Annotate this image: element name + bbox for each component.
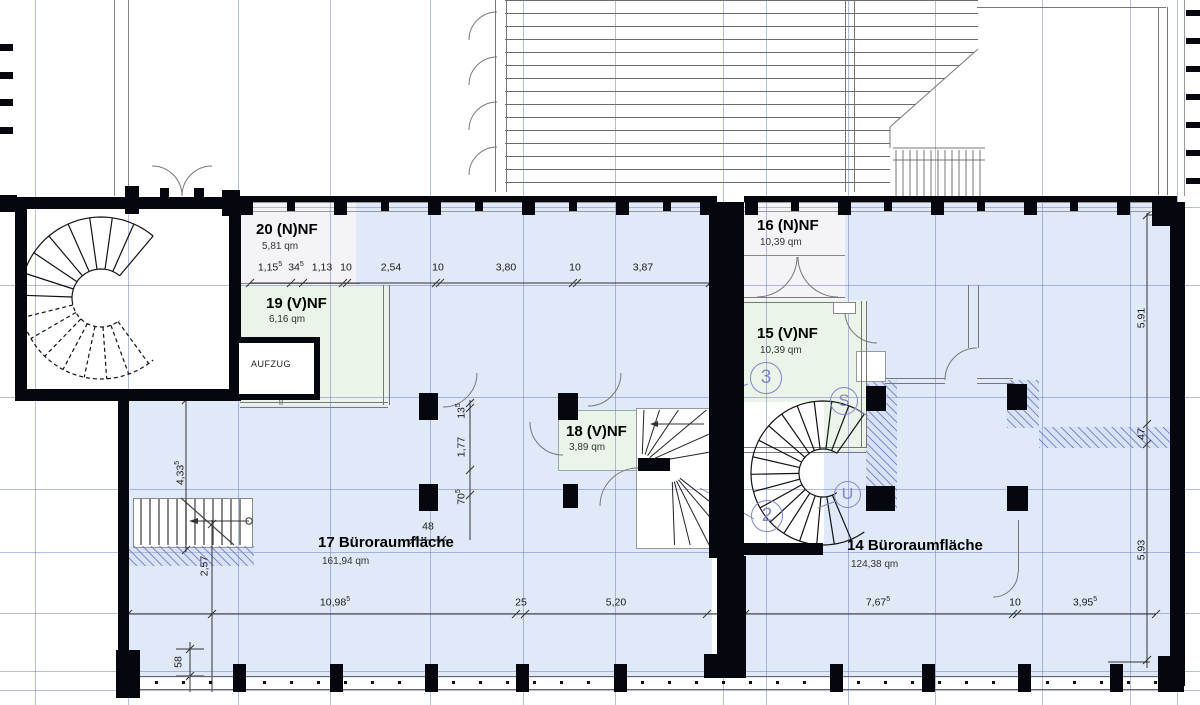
facade-pillar	[425, 664, 438, 692]
room-15-area: 10,39 qm	[760, 345, 802, 356]
window-band-top-right	[744, 202, 1168, 212]
column	[419, 484, 438, 511]
column	[866, 386, 886, 411]
grid-line-vertical	[935, 0, 936, 705]
wall-corner-bottom-left	[116, 650, 140, 698]
dim-right-3: 5,93	[1135, 540, 1148, 560]
dim-top-4: 10	[340, 261, 352, 274]
edge-stair-mark	[1186, 38, 1200, 44]
dim-bottom-2: 25	[515, 596, 527, 609]
facade-pillar	[977, 198, 985, 211]
room-17-name: 17 Büroraumfläche	[318, 534, 454, 551]
hatch-under-straight-stair	[128, 546, 254, 566]
fire-ladder-line	[1184, 0, 1185, 196]
facade-pillar	[334, 198, 347, 215]
column	[558, 393, 578, 420]
dim-left-3: 58	[172, 656, 185, 668]
facade-pillar	[1110, 664, 1123, 692]
wall-left-unit17	[118, 396, 129, 656]
dim-top-5: 2,54	[381, 261, 401, 274]
facade-pillar	[381, 198, 389, 211]
marker-3-text: 3	[761, 367, 772, 389]
room-16-area: 10,39 qm	[760, 237, 802, 248]
dim-left-2: 2,57	[198, 556, 211, 576]
room-19-name: 19 (V)NF	[266, 295, 327, 312]
dim-bottom-1: 10,985	[320, 596, 350, 609]
edge-wall-corner	[0, 195, 17, 212]
marker-U: U	[834, 481, 861, 508]
room-14-area: 124,38 qm	[851, 559, 898, 570]
facade-pillar	[663, 198, 671, 211]
edge-stair-mark	[0, 99, 13, 106]
wall-14-stub-door	[1018, 520, 1019, 572]
dim-mid-4: 48	[422, 520, 434, 533]
winder-stair-block	[636, 408, 716, 549]
dim-top-1: 1,155	[258, 261, 282, 274]
wall-corner-top-right	[1152, 196, 1176, 226]
neighbour-court-outline	[977, 7, 1166, 196]
neighbour-building-roof	[505, 0, 978, 192]
dim-top-8: 10	[569, 261, 581, 274]
wall-central-lower	[717, 556, 746, 678]
wall-under-right-spiral	[744, 543, 823, 555]
edge-stair-mark	[0, 72, 13, 79]
facade-pillar	[614, 664, 627, 692]
entrance-jamb-2	[160, 188, 169, 204]
edge-stair-mark	[0, 127, 13, 134]
facade-pillar	[522, 198, 535, 215]
edge-stair-mark	[1186, 66, 1200, 72]
dim-top-9: 3,87	[633, 261, 653, 274]
facade-pillar	[838, 198, 851, 215]
entrance-jamb-1	[125, 186, 139, 214]
room-20-name: 20 (N)NF	[256, 221, 318, 238]
facade-pillar	[1070, 198, 1078, 211]
neighbour-court-right-wall	[1158, 7, 1168, 195]
edge-stair-mark	[1186, 10, 1200, 16]
edge-stair-mark	[1186, 178, 1200, 184]
facade-pillar	[240, 198, 253, 215]
floor-plan: AUFZUG 20 (N)NF 5,81 qm 19 (V)NF 6,16 qm…	[0, 0, 1200, 705]
room-16-name: 16 (N)NF	[757, 217, 819, 234]
facade-pillar	[1018, 664, 1031, 692]
column	[1007, 486, 1028, 511]
wall-room15-bottom	[744, 447, 866, 453]
grid-line-horizontal	[0, 613, 1200, 614]
room-18-area: 3,89 qm	[569, 442, 605, 453]
facade-pillar	[233, 664, 246, 692]
facade-pillar	[791, 198, 799, 211]
wall-room20-bottom	[240, 283, 360, 287]
marker-2-text: 2	[762, 505, 773, 527]
dim-right-2: 47	[1135, 428, 1148, 440]
column	[419, 393, 438, 420]
marker-U-text: U	[842, 486, 854, 504]
dim-mid-3: 705	[455, 489, 468, 505]
wall-winder-stair-L	[638, 458, 670, 471]
dim-mid-2: 1,77	[455, 437, 468, 457]
facade-pillar	[922, 664, 935, 692]
column	[866, 486, 895, 511]
straight-stair-block	[133, 498, 253, 548]
dim-top-2: 345	[288, 261, 304, 274]
dim-left-1: 4,335	[174, 461, 187, 485]
marker-S: S	[830, 387, 858, 415]
facade-pillar	[931, 198, 944, 215]
wall-room19-right	[383, 285, 390, 405]
stairwell-enclosure-wall	[15, 197, 241, 401]
wall-room15-right	[861, 301, 867, 448]
dim-top-7: 3,80	[496, 261, 516, 274]
wall-top-right-unit	[744, 196, 1177, 202]
facade-pillar	[745, 198, 758, 215]
facade-pillar	[287, 198, 295, 211]
room-17-area: 161,94 qm	[322, 556, 369, 567]
wall-14-partition-left	[885, 378, 945, 384]
wall-room16-partition	[744, 255, 845, 258]
upper-corridor-wall	[114, 0, 129, 196]
dim-bottom-4: 7,675	[866, 596, 890, 609]
elevator-label: AUFZUG	[251, 359, 291, 369]
column	[563, 484, 578, 508]
facade-pillar	[330, 664, 343, 692]
dim-top-6: 10	[432, 261, 444, 274]
edge-stair-mark	[1186, 94, 1200, 100]
wall-corner-bottom-right	[1158, 656, 1184, 692]
door-leaf-room15	[833, 302, 856, 314]
facade-pillar	[616, 198, 629, 215]
marker-3: 3	[750, 362, 782, 394]
edge-stair-mark	[1186, 122, 1200, 128]
facade-pillar	[1024, 198, 1037, 215]
edge-stair-mark	[1186, 150, 1200, 156]
wall-top-left-unit	[228, 196, 717, 202]
wall-room19-bottom	[240, 402, 388, 408]
room-20-area: 5,81 qm	[262, 241, 298, 252]
grid-line-vertical	[430, 0, 431, 705]
wall-room16-bottom	[744, 297, 845, 303]
dim-mid-1: 135	[455, 403, 468, 419]
marker-S-text: S	[838, 391, 849, 411]
facade-pillar	[1117, 198, 1130, 215]
edge-stair-mark	[0, 44, 13, 51]
dim-bottom-5: 10	[1009, 596, 1021, 609]
room-19-area: 6,16 qm	[269, 314, 305, 325]
neighbour-inner-wall	[845, 0, 855, 192]
dim-right-1: 5,91	[1135, 308, 1148, 328]
room-18-name: 18 (V)NF	[566, 423, 627, 440]
wall-14-stub-vertical	[968, 285, 979, 348]
dim-top-3: 1,13	[312, 261, 332, 274]
room-15-name: 15 (V)NF	[757, 325, 818, 342]
facade-pillar	[475, 198, 483, 211]
facade-pillar	[884, 198, 892, 211]
wall-central-upper	[709, 202, 744, 558]
room-14-name: 14 Büroraumfläche	[847, 537, 983, 554]
facade-pillar	[700, 198, 713, 215]
wall-right-unit14	[1170, 202, 1185, 686]
wall-central-foot	[704, 654, 719, 678]
entrance-jamb-3	[194, 188, 204, 204]
facade-pillar	[428, 198, 441, 215]
dim-bottom-6: 3,955	[1073, 596, 1097, 609]
facade-pillar	[569, 198, 577, 211]
marker-2: 2	[751, 500, 783, 532]
column	[1007, 384, 1027, 410]
dim-bottom-3: 5,20	[606, 596, 626, 609]
facade-pillar	[830, 664, 843, 692]
neighbour-left-wall	[495, 0, 507, 192]
hatch-partition-horizontal	[1039, 427, 1171, 448]
entrance-jamb-4	[222, 190, 240, 216]
facade-pillar	[516, 664, 529, 692]
